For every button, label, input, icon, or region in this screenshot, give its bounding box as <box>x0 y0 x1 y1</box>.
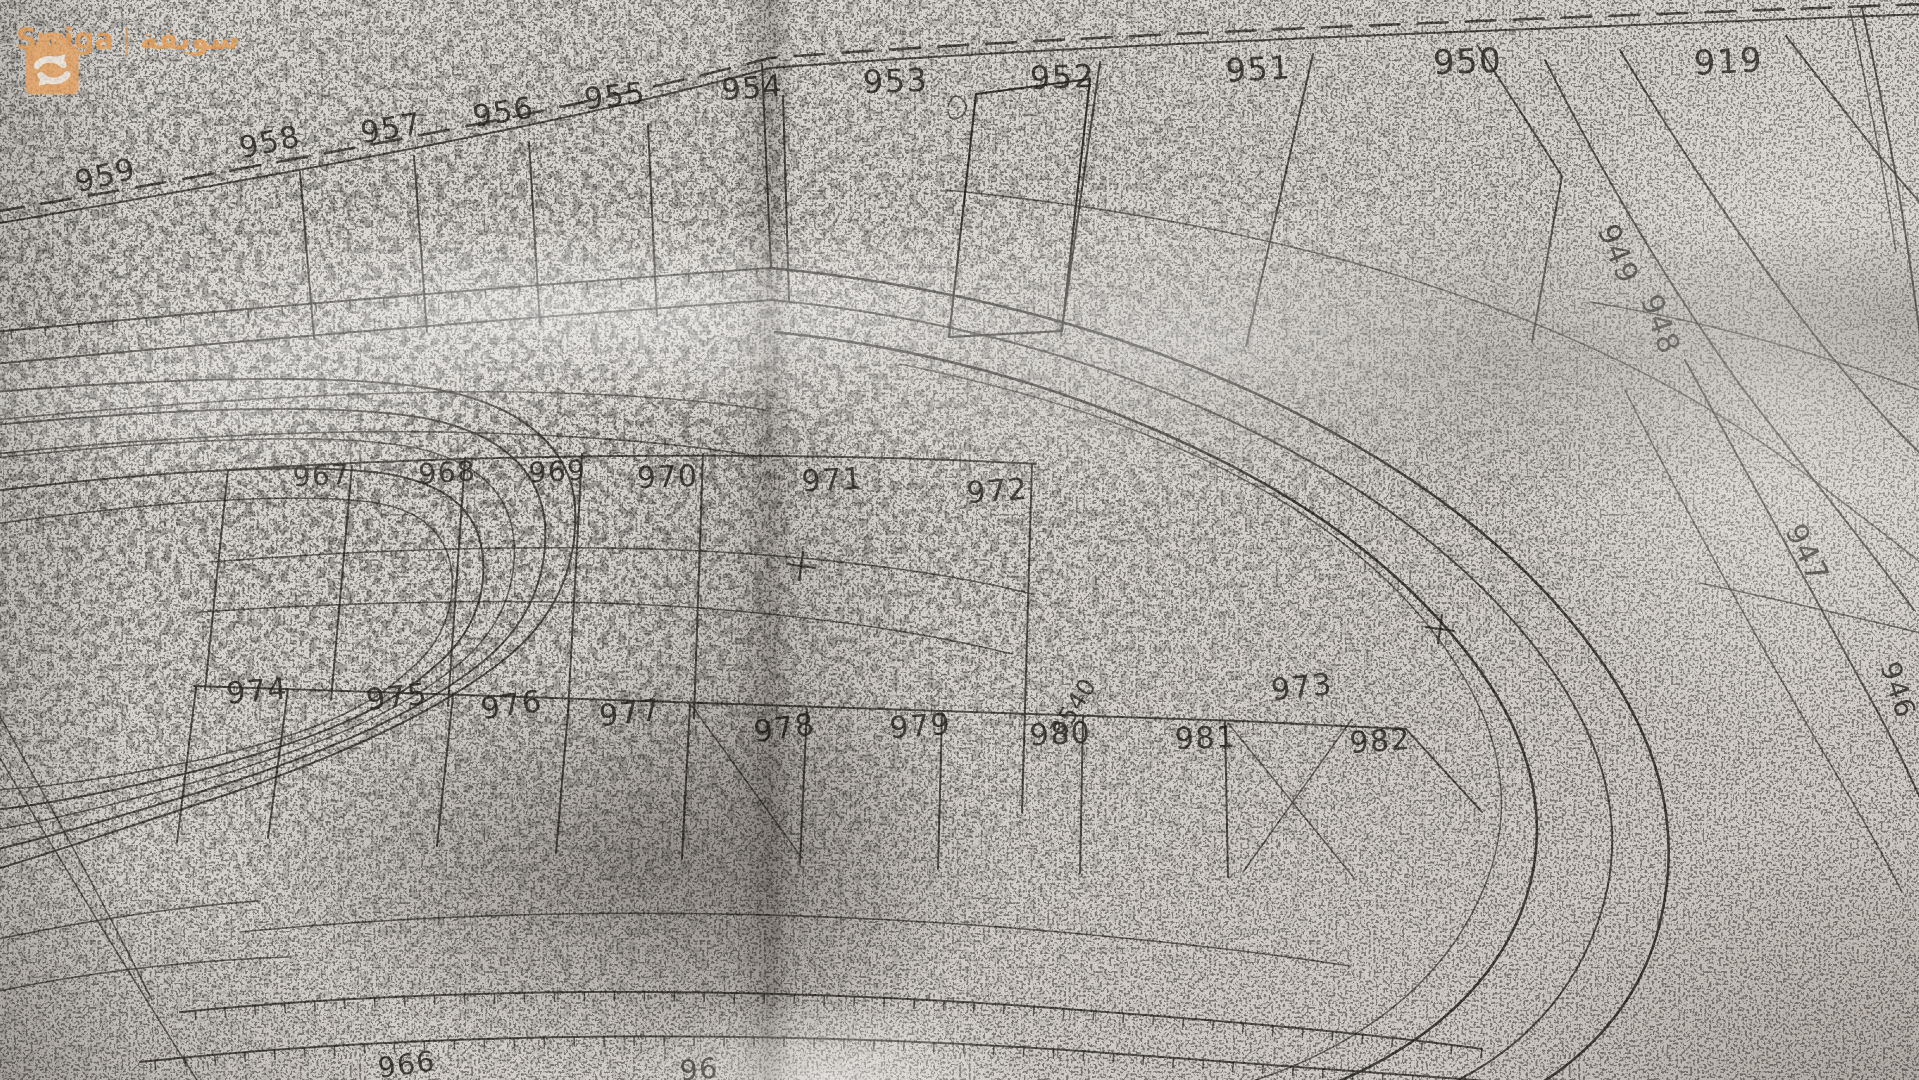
survey-map-canvas: 9599589579569559549539529519509199679689… <box>0 0 1919 1080</box>
toner-speckle-over <box>0 0 1919 1080</box>
photographed-survey-map: 9599589579569559549539529519509199679689… <box>0 0 1919 1080</box>
